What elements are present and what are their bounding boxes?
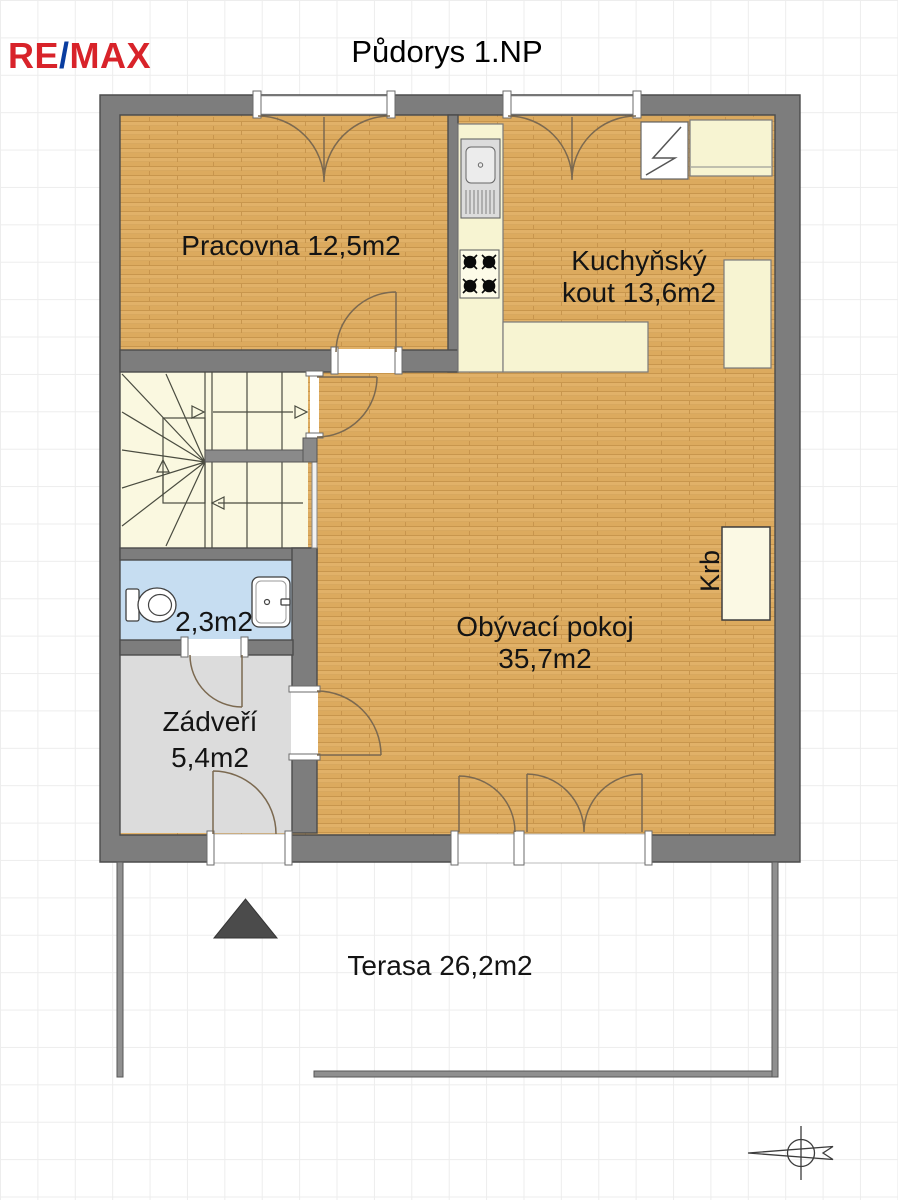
kitchen-counter-bottom [503, 322, 648, 372]
study-door-opening [336, 349, 396, 373]
bathroom-door-opening [186, 639, 242, 656]
compass-icon [748, 1126, 833, 1180]
wall-study-stairs [120, 350, 458, 372]
label-zadveri-line2: 5,4m2 [163, 740, 258, 776]
fireplace [722, 527, 770, 620]
label-pracovna: Pracovna 12,5m2 [181, 230, 400, 262]
stairs-screen-wall [312, 462, 317, 548]
label-obyvaci-pokoj-line2: 35,7m2 [456, 643, 633, 675]
wall-stairs-bathroom [120, 548, 317, 560]
label-krb: Krb [694, 550, 726, 592]
entrance-door-opening [212, 834, 287, 863]
floorplan-page: RE/MAX Půdorys 1.NP [0, 0, 898, 1200]
label-terasa: Terasa 26,2m2 [347, 950, 532, 982]
floorplan-drawing [0, 0, 898, 1200]
washbasin-icon [252, 577, 290, 627]
label-kuchynsky-kout: Kuchyňskýkout 13,6m2 [562, 245, 716, 309]
terrace-double-door-opening [524, 834, 645, 863]
label-obyvaci-pokoj-line1: Obývací pokoj [456, 611, 633, 643]
kitchen-counter-right [724, 260, 771, 368]
hallway-living-door-opening [291, 691, 318, 755]
label-kuchynsky-kout-line2: kout 13,6m2 [562, 277, 716, 309]
label-koupelna-wc: 2,3m2 [175, 606, 253, 638]
terrace-single-door-opening [455, 834, 515, 863]
wall-study-kitchen [448, 115, 458, 372]
label-obyvaci-pokoj: Obývací pokoj35,7m2 [456, 611, 633, 675]
stairs-door-opening [310, 372, 319, 438]
study-french-window [258, 96, 390, 114]
stairs-newel-post [303, 438, 317, 462]
kitchen-sink-icon [461, 139, 500, 218]
kitchen-counter-top [690, 120, 772, 176]
toilet-icon [126, 588, 176, 622]
entrance-arrow-icon [214, 899, 277, 938]
stairs-divider [205, 450, 313, 462]
label-zadveri-line1: Zádveří [163, 704, 258, 740]
label-kuchynsky-kout-line1: Kuchyňský [562, 245, 716, 277]
stove-icon [460, 250, 499, 298]
kitchen-french-window [508, 96, 636, 114]
fridge-icon [641, 122, 688, 179]
label-zadveri: Zádveří5,4m2 [163, 704, 258, 776]
